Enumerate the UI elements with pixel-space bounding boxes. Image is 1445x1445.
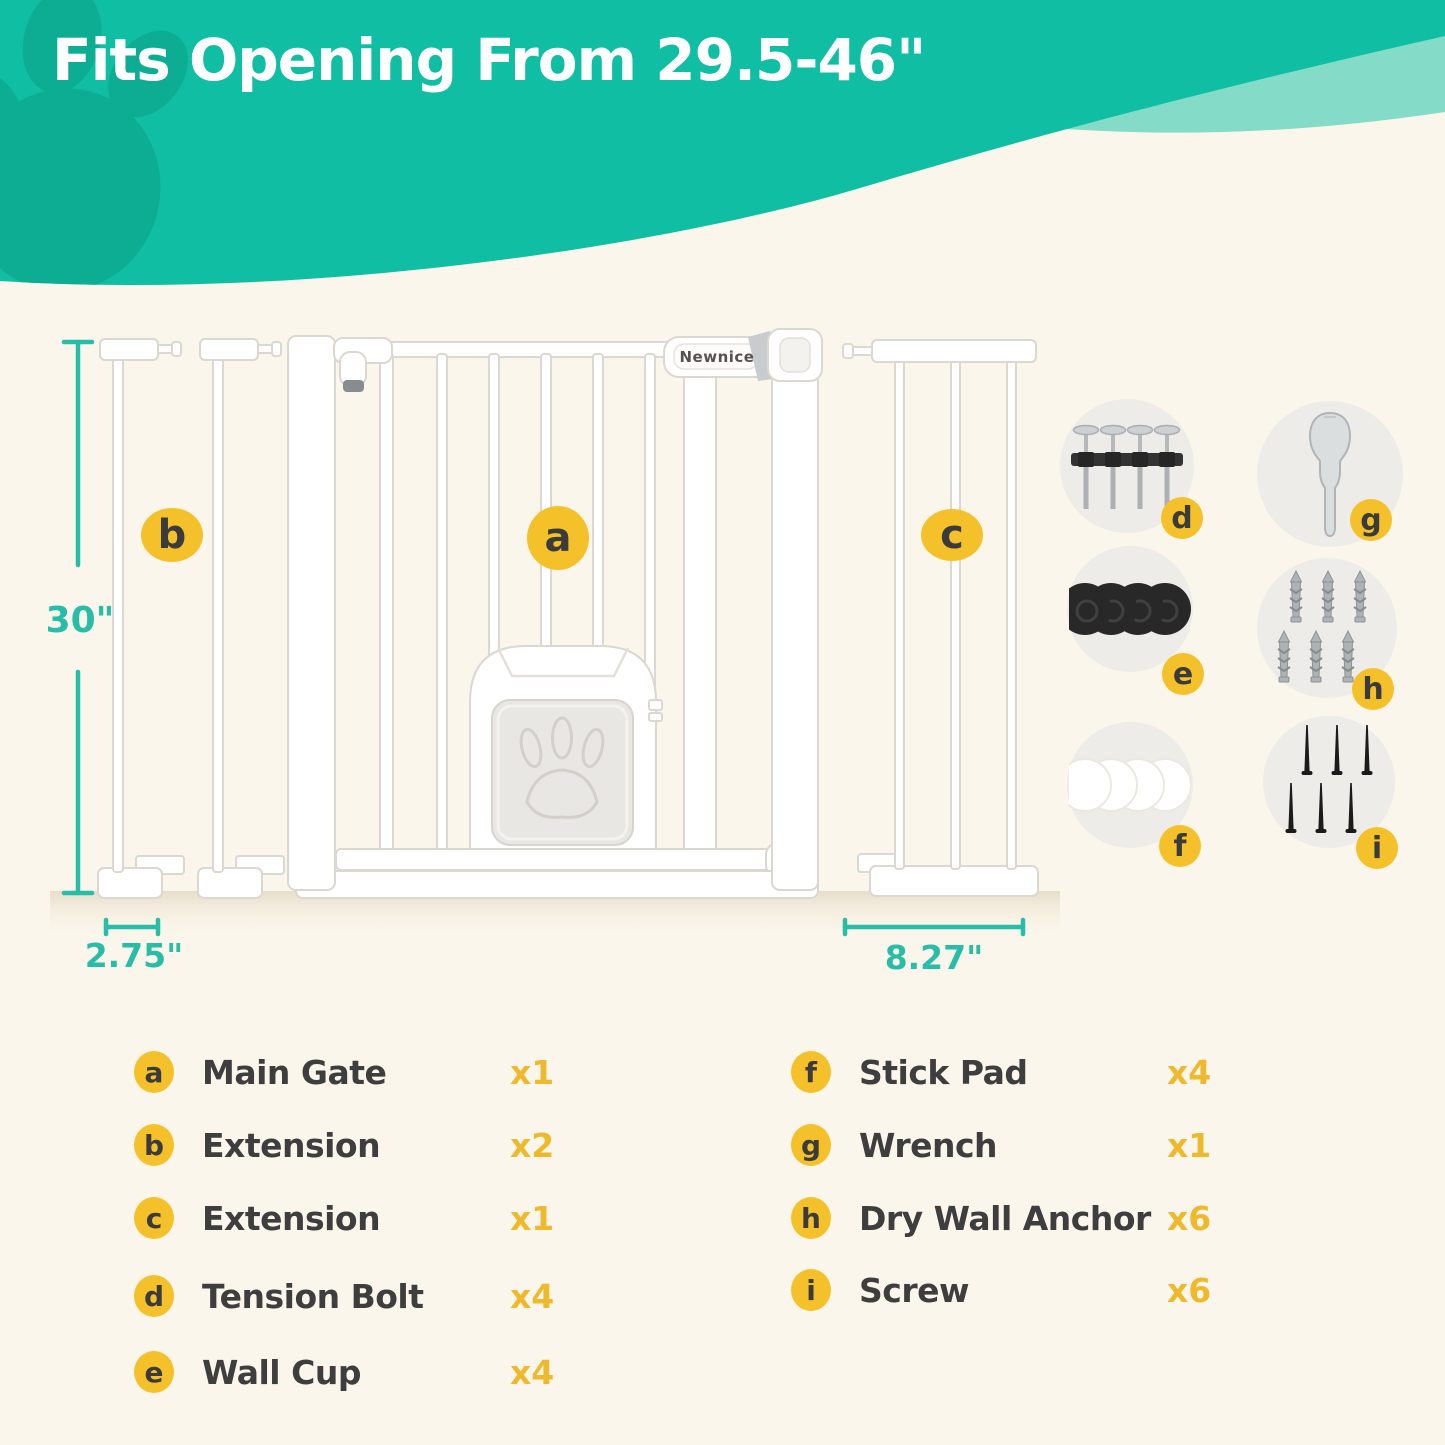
- part-circle-wall-cup: [1067, 546, 1193, 672]
- legend-badge-g: g: [791, 1124, 831, 1166]
- legend-label: Extension: [202, 1126, 380, 1165]
- legend-label: Stick Pad: [859, 1053, 1028, 1092]
- legend-qty: x4: [510, 1353, 554, 1392]
- legend-row-drywall-anchor: h Dry Wall Anchor x6: [791, 1195, 1271, 1241]
- legend-label: Tension Bolt: [202, 1277, 424, 1316]
- legend-row-screw: i Screw x6: [791, 1267, 1271, 1313]
- wall-cup-icon: [1069, 580, 1191, 638]
- legend-qty: x1: [510, 1199, 554, 1238]
- extension-c: [843, 340, 1038, 896]
- legend-badge-i: i: [791, 1269, 831, 1311]
- legend-label: Main Gate: [202, 1053, 386, 1092]
- wrench-icon: [1304, 410, 1356, 538]
- small-extension-width-dimension: 2.75": [80, 936, 188, 975]
- legend-badge-f: f: [791, 1051, 831, 1093]
- part-badge-d: d: [1161, 497, 1203, 539]
- legend-row-tension-bolt: d Tension Bolt x4: [134, 1273, 614, 1319]
- legend-row-wrench: g Wrench x1: [791, 1122, 1271, 1168]
- part-badge-i: i: [1356, 827, 1398, 869]
- legend-badge-a: a: [134, 1051, 174, 1093]
- legend-badge-b: b: [134, 1124, 174, 1166]
- stick-pad-icon: [1069, 756, 1191, 814]
- screw-icon: [1277, 723, 1381, 841]
- legend-badge-h: h: [791, 1197, 831, 1239]
- part-badge-h: h: [1352, 668, 1394, 710]
- legend-badge-c: c: [134, 1197, 174, 1239]
- legend-row-extension-c: c Extension x1: [134, 1195, 614, 1241]
- legend-qty: x2: [510, 1126, 554, 1165]
- callout-main-gate: a: [527, 506, 589, 570]
- part-badge-g: g: [1350, 499, 1392, 541]
- legend-label: Wrench: [859, 1126, 997, 1165]
- legend-qty: x6: [1167, 1199, 1211, 1238]
- legend-qty: x1: [510, 1053, 554, 1092]
- legend-badge-e: e: [134, 1351, 174, 1393]
- legend-row-stick-pad: f Stick Pad x4: [791, 1049, 1271, 1095]
- legend-qty: x4: [1167, 1053, 1211, 1092]
- tension-bolt-icon: [1071, 419, 1183, 513]
- legend-qty: x6: [1167, 1271, 1211, 1310]
- legend-row-main-gate: a Main Gate x1: [134, 1049, 614, 1095]
- callout-extension-small: b: [141, 508, 203, 562]
- legend-qty: x1: [1167, 1126, 1211, 1165]
- extension-b-second: [198, 339, 284, 898]
- legend-row-extension-b: b Extension x2: [134, 1122, 614, 1168]
- legend-label: Wall Cup: [202, 1353, 361, 1392]
- legend-qty: x4: [510, 1277, 554, 1316]
- part-badge-e: e: [1162, 653, 1204, 695]
- legend-label: Dry Wall Anchor: [859, 1199, 1151, 1238]
- legend-label: Screw: [859, 1271, 969, 1310]
- legend-row-wall-cup: e Wall Cup x4: [134, 1349, 614, 1395]
- gate-height-dimension: 30": [30, 600, 130, 641]
- cat-door: [470, 646, 662, 872]
- callout-extension-large: c: [921, 509, 983, 561]
- legend-badge-d: d: [134, 1275, 174, 1317]
- legend-label: Extension: [202, 1199, 380, 1238]
- large-extension-width-dimension: 8.27": [854, 938, 1014, 977]
- part-badge-f: f: [1159, 825, 1201, 867]
- main-gate: [288, 329, 822, 898]
- brand-logo: Newnice: [676, 348, 758, 366]
- gate-hinge: [288, 336, 392, 890]
- product-infographic: Fits Opening From 29.5-46": [0, 0, 1445, 1445]
